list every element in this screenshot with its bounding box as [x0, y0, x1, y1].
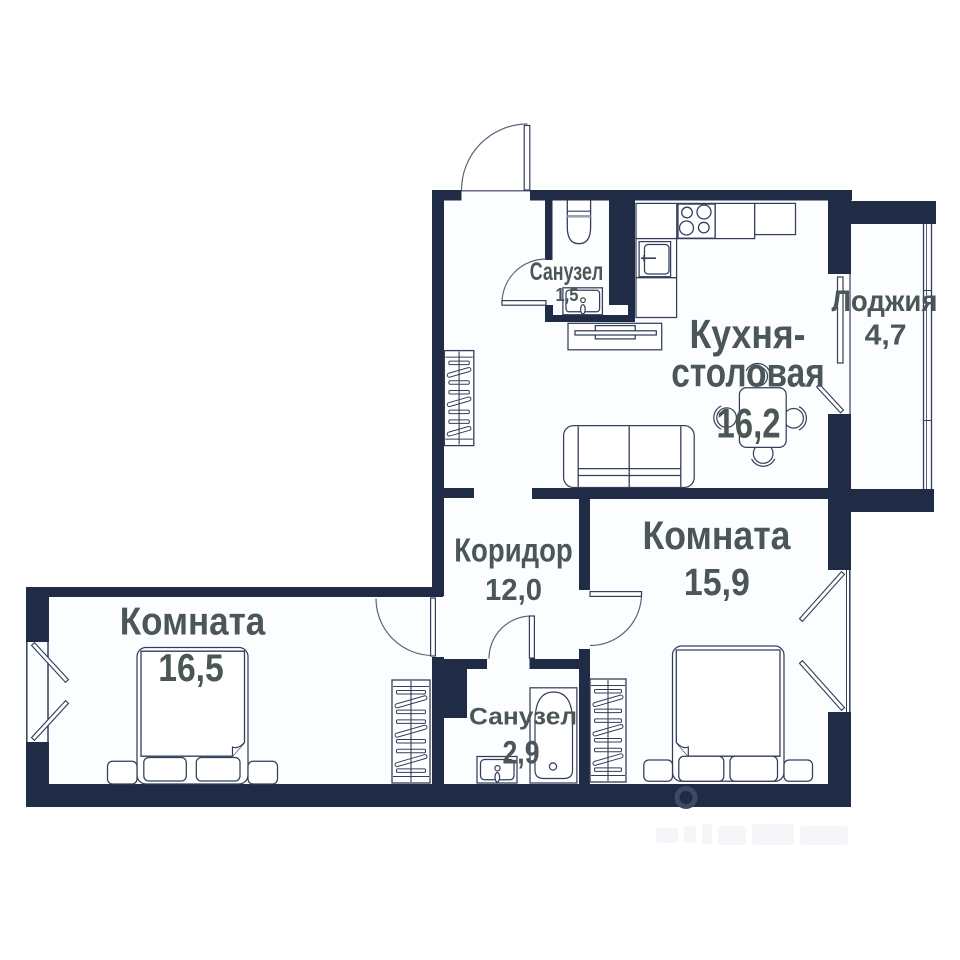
svg-text:12,0: 12,0 — [485, 572, 542, 607]
svg-text:16,2: 16,2 — [717, 400, 781, 447]
svg-text:Санузел: Санузел — [469, 704, 577, 731]
svg-text:Комната: Комната — [120, 601, 266, 644]
svg-text:Коридор: Коридор — [454, 532, 573, 569]
svg-text:Санузел: Санузел — [530, 258, 604, 286]
svg-text:Лоджия: Лоджия — [832, 285, 938, 318]
svg-text:4,7: 4,7 — [865, 320, 907, 352]
svg-text:1,5: 1,5 — [556, 285, 579, 305]
svg-text:16,5: 16,5 — [158, 647, 224, 690]
svg-text:столовая: столовая — [671, 350, 825, 396]
svg-text:15,9: 15,9 — [684, 562, 750, 604]
svg-text:Комната: Комната — [643, 514, 792, 558]
svg-text:2,9: 2,9 — [503, 735, 540, 771]
